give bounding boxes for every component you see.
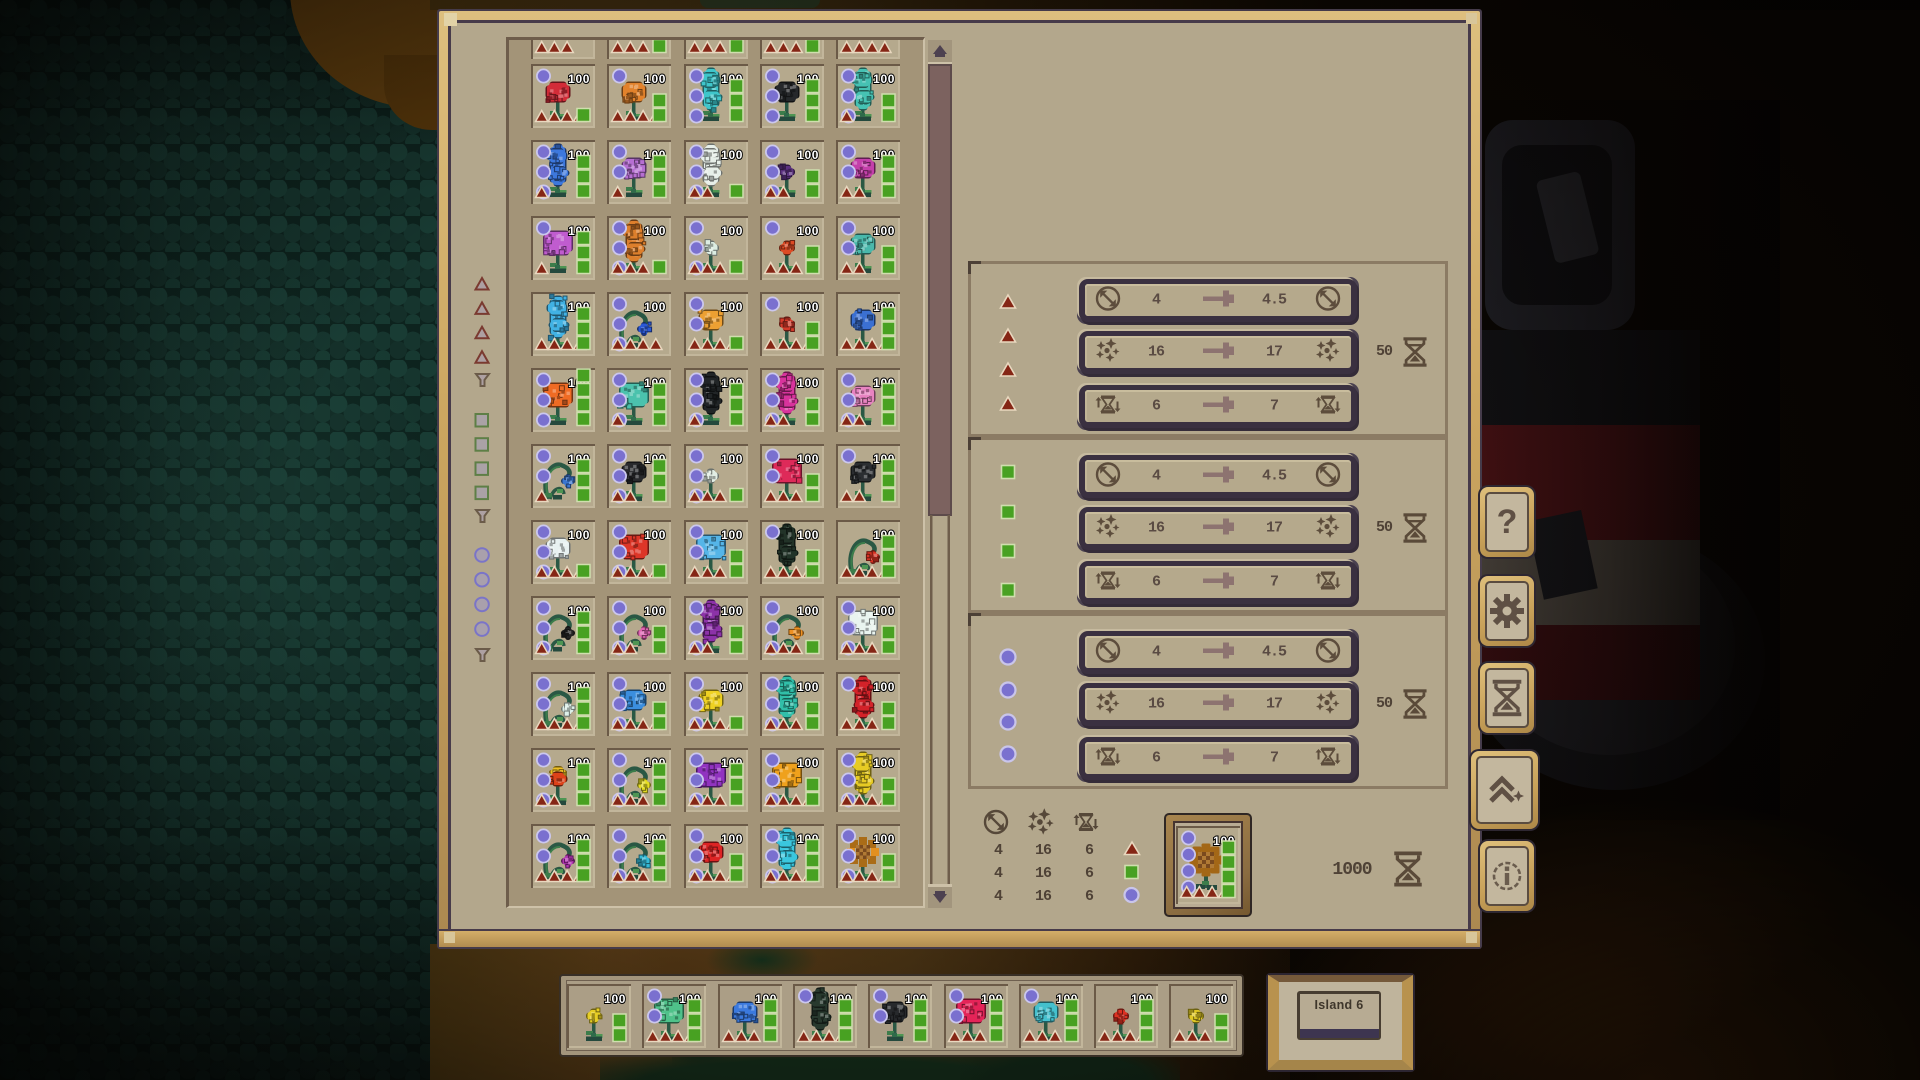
svg-text:100: 100	[721, 452, 743, 466]
svg-text:100: 100	[1207, 992, 1229, 1006]
svg-text:100: 100	[873, 680, 895, 694]
svg-text:100: 100	[873, 224, 895, 238]
svg-text:100: 100	[721, 680, 743, 694]
svg-text:100: 100	[721, 604, 743, 618]
svg-text:100: 100	[797, 680, 819, 694]
svg-text:100: 100	[873, 832, 895, 846]
svg-text:100: 100	[568, 528, 590, 542]
svg-text:100: 100	[604, 992, 626, 1006]
svg-text:100: 100	[644, 680, 666, 694]
svg-text:100: 100	[797, 376, 819, 390]
svg-text:100: 100	[721, 300, 743, 314]
svg-text:100: 100	[873, 756, 895, 770]
svg-text:100: 100	[797, 224, 819, 238]
svg-text:100: 100	[797, 528, 819, 542]
svg-text:100: 100	[721, 528, 743, 542]
svg-text:100: 100	[644, 604, 666, 618]
svg-text:100: 100	[721, 224, 743, 238]
svg-text:100: 100	[644, 224, 666, 238]
svg-text:100: 100	[644, 528, 666, 542]
svg-text:100: 100	[797, 604, 819, 618]
svg-text:100: 100	[721, 148, 743, 162]
svg-text:100: 100	[873, 604, 895, 618]
svg-text:100: 100	[721, 832, 743, 846]
svg-text:100: 100	[873, 72, 895, 86]
svg-text:100: 100	[797, 756, 819, 770]
svg-text:100: 100	[797, 452, 819, 466]
svg-text:100: 100	[797, 148, 819, 162]
svg-text:100: 100	[644, 300, 666, 314]
svg-text:100: 100	[797, 300, 819, 314]
svg-text:100: 100	[644, 72, 666, 86]
svg-text:100: 100	[568, 72, 590, 86]
